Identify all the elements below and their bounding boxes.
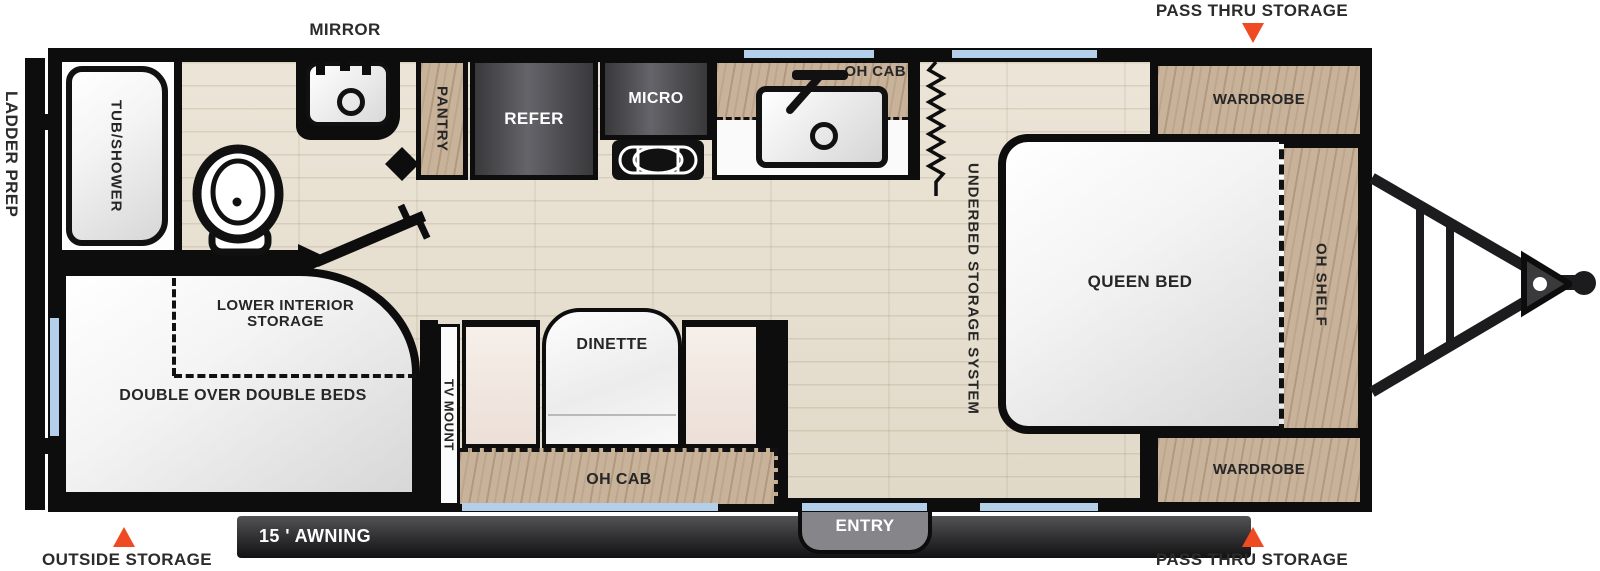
kitchen-faucet-icon	[790, 70, 848, 110]
door-swing-icon	[316, 147, 430, 262]
outside-storage-label: OUTSIDE STORAGE	[22, 550, 232, 570]
entry-label: ENTRY	[802, 512, 928, 540]
entry-door: ENTRY	[798, 512, 932, 554]
ladder-prep-label: LADDER PREP	[0, 84, 22, 224]
pass-thru-bottom-arrow-icon	[1242, 527, 1264, 547]
symbol-overlay	[0, 0, 1600, 571]
pass-thru-top-arrow-icon	[1242, 23, 1264, 43]
stove-icon	[612, 140, 704, 180]
pass-thru-top-label: PASS THRU STORAGE	[1138, 1, 1366, 21]
awning-bar: 15 ' AWNING	[237, 516, 1251, 558]
pass-thru-bottom-label: PASS THRU STORAGE	[1138, 550, 1366, 570]
hitch-icon	[1372, 178, 1596, 392]
mirror-label: MIRROR	[298, 20, 392, 40]
curtain-zigzag-icon	[929, 62, 943, 196]
awning-label: 15 ' AWNING	[237, 516, 1251, 556]
toilet-icon	[197, 149, 279, 252]
floorplan-canvas: TUB/SHOWER PANTRY REFER MICRO OH CAB LOW…	[0, 0, 1600, 571]
outside-storage-arrow-icon	[113, 527, 135, 547]
